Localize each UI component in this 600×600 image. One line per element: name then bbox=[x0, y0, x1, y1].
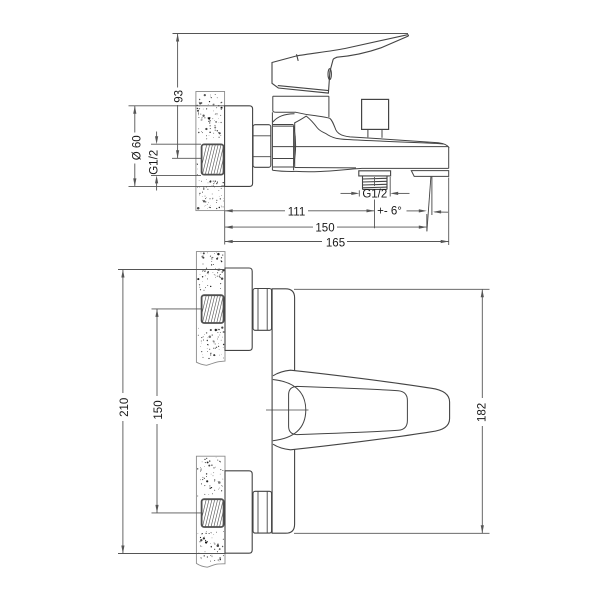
svg-text:111: 111 bbox=[288, 206, 305, 218]
svg-text:G1/2: G1/2 bbox=[148, 150, 160, 175]
svg-text:Ø 60: Ø 60 bbox=[131, 135, 143, 160]
svg-text:93: 93 bbox=[173, 90, 185, 103]
svg-text:G1/2: G1/2 bbox=[362, 188, 387, 200]
svg-text:165: 165 bbox=[326, 238, 345, 250]
svg-text:150: 150 bbox=[153, 400, 165, 419]
svg-text:210: 210 bbox=[119, 398, 131, 417]
svg-text:+- 6°: +- 6° bbox=[377, 206, 402, 218]
svg-text:182: 182 bbox=[477, 403, 489, 422]
svg-text:150: 150 bbox=[315, 223, 334, 235]
